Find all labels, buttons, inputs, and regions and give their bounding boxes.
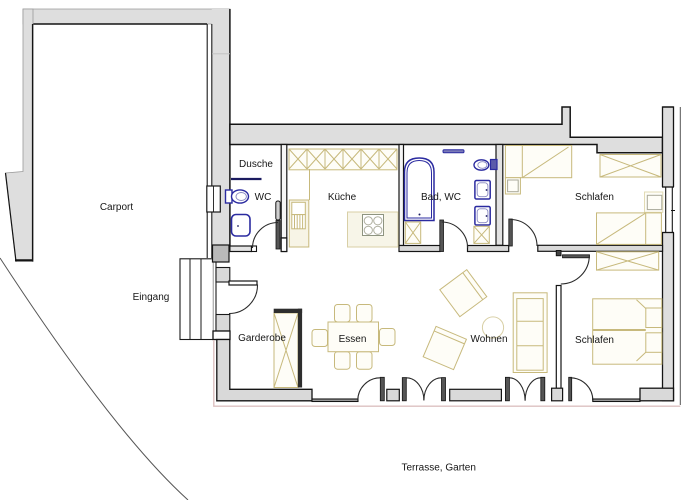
svg-text:Schlafen: Schlafen (575, 192, 614, 203)
svg-text:Essen: Essen (339, 334, 367, 345)
svg-text:WC: WC (255, 192, 272, 203)
svg-text:Garderobe: Garderobe (238, 333, 286, 344)
svg-text:Carport: Carport (100, 202, 134, 213)
svg-text:Terrasse, Garten: Terrasse, Garten (401, 462, 475, 473)
svg-text:Bad, WC: Bad, WC (421, 192, 461, 203)
svg-text:Küche: Küche (328, 192, 357, 203)
svg-text:Wohnen: Wohnen (470, 334, 507, 345)
svg-text:Dusche: Dusche (239, 159, 273, 170)
svg-text:Eingang: Eingang (133, 292, 170, 303)
svg-text:Schlafen: Schlafen (575, 335, 614, 346)
